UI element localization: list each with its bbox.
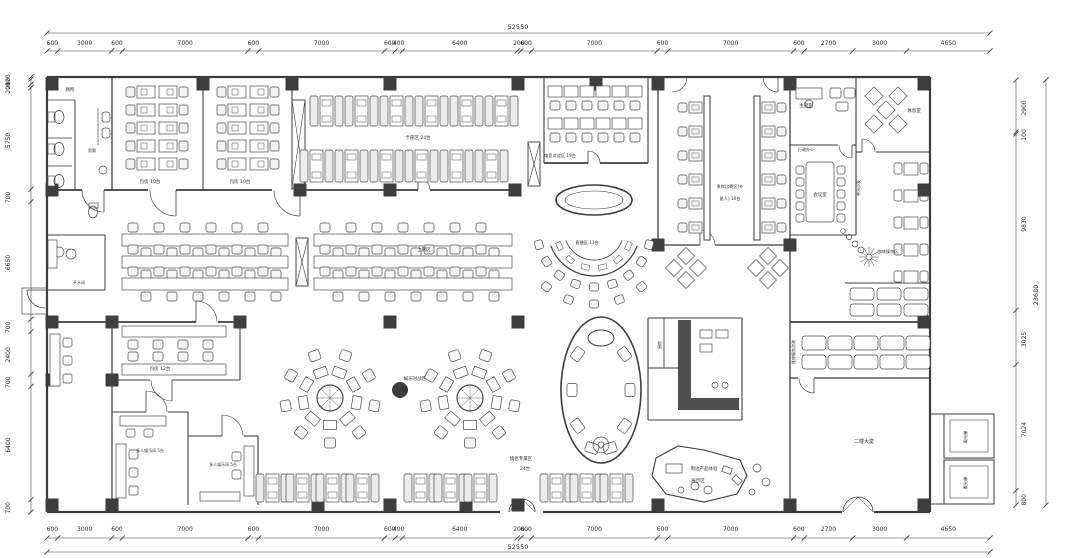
furniture-rect	[564, 118, 578, 129]
furniture-rect	[63, 374, 72, 383]
furniture-rect	[159, 158, 177, 170]
furniture-rect	[570, 346, 586, 362]
furniture-rect	[777, 223, 786, 232]
furniture-rect	[153, 352, 163, 361]
furniture-rect	[250, 140, 268, 152]
furniture-rect	[137, 104, 155, 116]
path	[551, 246, 637, 276]
furniture-rect	[580, 118, 594, 129]
label-elevator-a: 观光梯	[962, 431, 969, 444]
circle	[712, 382, 718, 388]
furniture-rect	[228, 122, 246, 134]
furniture-rect	[270, 105, 279, 115]
furniture-rect	[950, 420, 988, 452]
label-meeting-room: 会议室	[813, 191, 827, 198]
furniture-rect	[258, 267, 268, 276]
column	[197, 78, 210, 91]
furniture-rect	[830, 88, 841, 98]
furniture-rect	[556, 241, 564, 250]
dim-label: 600	[520, 40, 532, 47]
door-swing-arc	[839, 145, 852, 158]
table-diamond	[748, 260, 765, 277]
dim-label: 600	[248, 40, 260, 47]
label-male-toilet: 男厕	[88, 147, 96, 153]
entry-stoop	[22, 288, 47, 314]
dim-label: 600	[520, 526, 532, 533]
column	[918, 316, 931, 329]
furniture-rect	[120, 416, 166, 426]
furniture-rect	[193, 248, 203, 257]
furniture-rect	[445, 411, 461, 426]
furniture-rect	[590, 300, 599, 308]
label-merch-zone-2: 展示区	[691, 478, 705, 484]
furniture-rect	[489, 292, 499, 301]
label-toilet: 厕所	[66, 86, 75, 93]
dim-label: 3000	[77, 40, 92, 47]
furniture-rect	[438, 396, 449, 410]
furniture-rect	[122, 256, 288, 268]
furniture-rect	[153, 340, 163, 349]
furniture-rect	[398, 223, 408, 232]
door	[799, 378, 814, 393]
furniture-rect	[904, 244, 918, 256]
furniture-rect	[310, 96, 318, 126]
door	[150, 190, 176, 216]
furniture-rect	[193, 292, 203, 301]
column	[512, 316, 525, 329]
furniture-rect	[325, 150, 333, 182]
furniture-rect	[617, 418, 633, 434]
dim-label: 3000	[77, 526, 92, 533]
furniture-rect	[628, 118, 642, 129]
furniture-rect	[434, 425, 449, 440]
label-tea-sofa: 茶水沙发	[855, 180, 861, 196]
furniture-rect	[126, 87, 135, 97]
furniture-rect	[854, 336, 878, 350]
furniture-rect	[628, 86, 642, 97]
dim-label: 7000	[587, 40, 602, 47]
furniture-rect	[678, 223, 687, 232]
column	[784, 499, 797, 512]
hub-spoke	[321, 398, 330, 407]
furniture-rect	[570, 279, 581, 289]
furniture-rect	[320, 245, 330, 254]
door-swing-arc	[82, 190, 104, 212]
circle	[704, 486, 712, 494]
furniture-rect	[837, 166, 845, 174]
furniture-rect	[362, 368, 376, 383]
label-rest-room: 休息室	[907, 107, 921, 114]
label-hot-water-room: 开水间	[73, 279, 85, 285]
furniture-rect	[299, 377, 313, 393]
furniture-rect	[217, 105, 226, 115]
furniture-rect	[333, 292, 343, 301]
furniture-rect	[510, 96, 518, 126]
furniture-rect	[440, 150, 448, 182]
door-swing-arc	[150, 190, 176, 216]
furniture-rect	[581, 264, 590, 271]
furniture-rect	[567, 384, 577, 397]
dim-label: 600	[657, 526, 669, 533]
furniture-rect	[439, 377, 453, 393]
furniture-rect	[320, 267, 330, 276]
hub-spoke	[461, 398, 470, 407]
furniture-rect	[624, 241, 632, 250]
furniture-rect	[836, 102, 848, 111]
furniture-rect	[920, 271, 928, 282]
furniture-rect	[154, 267, 164, 276]
furniture-rect	[371, 474, 379, 502]
furniture-rect	[548, 118, 562, 129]
furniture-rect	[122, 326, 226, 337]
path	[652, 446, 747, 502]
furniture-rect	[359, 248, 369, 257]
column	[106, 374, 119, 387]
furniture-rect	[614, 294, 625, 305]
furniture-rect	[339, 349, 353, 362]
dim-total-label: 52550	[508, 543, 529, 551]
furniture-rect	[167, 248, 177, 257]
dim-label: 7024	[1021, 422, 1028, 437]
furniture-rect	[691, 398, 739, 410]
furniture-rect	[453, 366, 468, 379]
furniture-rect	[137, 158, 155, 170]
door	[588, 151, 600, 163]
circle	[66, 249, 76, 259]
furniture-rect	[385, 270, 395, 279]
furniture-rect	[475, 96, 483, 126]
furniture-rect	[489, 270, 499, 279]
ellipse	[54, 143, 64, 156]
dim-label: 600	[47, 40, 59, 47]
column	[384, 499, 397, 512]
furniture-rect	[335, 96, 343, 126]
dim-label: 600	[248, 526, 260, 533]
furniture-rect	[284, 368, 298, 383]
furniture-rect	[250, 158, 268, 170]
furniture-rect	[850, 304, 874, 316]
furniture-rect	[300, 150, 308, 182]
table-diamond	[772, 260, 789, 277]
furniture-rect	[245, 292, 255, 301]
furniture-rect	[630, 133, 640, 142]
furniture-rect	[434, 474, 442, 502]
label-battle-zone-2: 23台	[398, 386, 409, 393]
furniture-rect	[122, 278, 288, 290]
furniture-rect	[463, 248, 473, 257]
label-private-room-10a: 包房 10台	[140, 178, 161, 185]
column	[918, 499, 931, 512]
furniture-rect	[636, 256, 648, 268]
furniture-rect	[332, 366, 347, 379]
dim-label: 6650	[5, 255, 12, 270]
furniture-rect	[689, 126, 702, 137]
furniture-rect	[102, 112, 110, 122]
table-diamond	[889, 87, 907, 105]
column	[512, 499, 525, 512]
furniture-rect	[450, 245, 460, 254]
furniture-rect	[424, 223, 434, 232]
label-merch-zone-1: 周边产品体验	[691, 465, 718, 472]
column	[918, 78, 931, 91]
furniture-rect	[219, 270, 229, 279]
door-swing-arc	[196, 301, 217, 322]
furniture-rect	[206, 223, 216, 232]
furniture-rect	[950, 466, 988, 498]
label-party-room-b: 多人娱乐间 5台	[209, 461, 237, 467]
column	[384, 316, 397, 329]
dim-label: 700	[5, 376, 12, 388]
dim-label: 7000	[178, 40, 193, 47]
furniture-rect	[476, 245, 486, 254]
furniture-rect	[258, 245, 268, 254]
furniture-rect	[678, 103, 687, 112]
furniture-rect	[944, 414, 994, 458]
furniture-rect	[420, 400, 432, 413]
ellipse	[54, 175, 64, 188]
ellipse	[588, 330, 614, 346]
furniture-rect	[314, 234, 512, 246]
furniture-rect	[796, 178, 804, 186]
circle	[722, 382, 728, 388]
furniture-rect	[630, 101, 640, 110]
door-swing-arc	[862, 139, 875, 152]
circle	[841, 229, 846, 234]
dim-label: 700	[5, 322, 12, 334]
furniture-rect	[206, 267, 216, 276]
furniture-rect	[491, 396, 502, 410]
furniture-rect	[802, 336, 826, 350]
furniture-rect	[232, 245, 242, 254]
furniture-rect	[580, 86, 594, 97]
furniture-rect	[894, 271, 902, 282]
dim-label: 7000	[587, 526, 602, 533]
furniture-rect	[180, 245, 190, 254]
furniture-rect	[102, 128, 110, 138]
dim-label: 600	[47, 526, 59, 533]
furniture-rect	[904, 190, 918, 202]
door-swing-arc	[799, 378, 814, 393]
furniture-rect	[126, 105, 135, 115]
circle	[749, 489, 755, 495]
floor-plan-svg: 6003000600700060070006004006400200600700…	[0, 0, 1072, 558]
table-diamond	[666, 260, 683, 277]
dim-label: 200	[5, 82, 12, 94]
furniture-rect	[137, 122, 155, 134]
ellipse	[565, 191, 623, 209]
label-private-room-10b: 包房 10台	[230, 178, 251, 185]
furniture-rect	[360, 150, 368, 182]
furniture-rect	[666, 464, 682, 473]
label-vip-zone-1: 贵宾比赛区(外	[717, 183, 745, 190]
furniture-rect	[228, 158, 246, 170]
door-swing-arc	[222, 415, 243, 436]
furniture-rect	[305, 411, 321, 426]
furniture-rect	[796, 214, 804, 222]
furniture-rect	[678, 199, 687, 208]
furniture-rect	[602, 441, 617, 455]
furniture-rect	[206, 245, 216, 254]
furniture-rect	[411, 292, 421, 301]
furniture-rect	[880, 355, 904, 369]
furniture-rect	[398, 245, 408, 254]
furniture-rect	[385, 248, 395, 257]
furniture-rect	[716, 330, 728, 338]
dim-label: 7000	[314, 526, 329, 533]
furniture-rect	[244, 446, 254, 496]
column	[106, 499, 119, 512]
furniture-rect	[489, 474, 497, 502]
dim-label: 4650	[941, 526, 956, 533]
furniture-rect	[380, 96, 388, 126]
furniture-rect	[904, 163, 918, 175]
dim-label: 600	[793, 526, 805, 533]
furniture-rect	[415, 96, 423, 126]
furniture-rect	[286, 474, 294, 502]
furniture-rect	[200, 492, 240, 501]
door-swing-arc	[763, 77, 778, 92]
furniture-rect	[548, 86, 562, 97]
furniture-rect	[335, 150, 343, 182]
hub-spoke	[321, 389, 330, 398]
furniture-rect	[689, 198, 702, 209]
furniture-rect	[179, 141, 188, 151]
furniture-rect	[613, 255, 622, 264]
table-diamond	[678, 272, 695, 289]
circle	[762, 478, 770, 486]
furniture-rect	[203, 352, 213, 361]
dim-label: 7000	[178, 526, 193, 533]
furniture-rect	[828, 336, 852, 350]
hub-spoke	[461, 389, 470, 398]
furniture-rect	[217, 159, 226, 169]
furniture-rect	[854, 355, 878, 369]
furniture-rect	[596, 118, 610, 129]
furniture-rect	[678, 320, 691, 410]
label-repair-service: 维修服务咨询	[790, 340, 796, 364]
furniture-rect	[920, 217, 928, 228]
table-diamond	[877, 101, 895, 119]
dim-label: 6400	[452, 40, 467, 47]
furniture-rect	[796, 190, 804, 198]
furniture-rect	[540, 474, 548, 502]
furniture-rect	[565, 255, 574, 264]
furniture-rect	[612, 86, 626, 97]
furniture-rect	[63, 356, 72, 365]
furniture-rect	[63, 338, 72, 347]
hub-spoke	[470, 389, 479, 398]
furniture-rect	[598, 264, 607, 271]
dim-label: 3000	[872, 526, 887, 533]
furniture-rect	[345, 96, 353, 126]
furniture-rect	[762, 150, 775, 161]
furniture-rect	[217, 141, 226, 151]
furniture-rect	[476, 223, 486, 232]
furniture-rect	[463, 270, 473, 279]
furniture-rect	[689, 222, 702, 233]
furniture-rect	[219, 292, 229, 301]
furniture-rect	[541, 256, 553, 268]
dim-label: 2700	[821, 40, 836, 47]
furniture-rect	[570, 418, 586, 434]
furniture-rect	[128, 267, 138, 276]
furniture-rect	[850, 288, 874, 300]
furniture-rect	[837, 178, 845, 186]
furniture-rect	[228, 140, 246, 152]
furniture-rect	[372, 245, 382, 254]
furniture-rect	[906, 336, 930, 350]
furniture-rect	[678, 151, 687, 160]
dim-label: 600	[111, 526, 123, 533]
furniture-rect	[700, 344, 712, 352]
furniture-rect	[144, 429, 153, 437]
column	[384, 184, 397, 197]
furniture-rect	[193, 270, 203, 279]
dim-total-label: 52550	[508, 23, 529, 31]
furniture-rect	[154, 245, 164, 254]
circle	[678, 487, 684, 493]
furniture-rect	[372, 223, 382, 232]
furniture-rect	[316, 474, 324, 502]
label-esports-zone: 电竞对战区 19台	[544, 152, 576, 159]
furniture-rect	[564, 86, 578, 97]
furniture-rect	[405, 96, 413, 126]
dim-label: 100	[1021, 129, 1028, 141]
furniture-rect	[636, 281, 648, 293]
dim-label: 600	[111, 40, 123, 47]
furniture-rect	[370, 150, 378, 182]
furniture-rect	[180, 267, 190, 276]
furniture-rect	[600, 474, 608, 502]
furniture-rect	[294, 425, 309, 440]
furniture-rect	[48, 240, 57, 268]
furniture-rect	[590, 283, 599, 291]
furniture-rect	[437, 292, 447, 301]
label-vip-zone-2: 星人) 10台	[720, 195, 741, 202]
furniture-rect	[777, 127, 786, 136]
label-coffee-bar: 咖啡操作区	[878, 248, 899, 255]
furniture-rect	[351, 396, 362, 410]
dim-label: 700	[5, 502, 12, 514]
furniture-rect	[250, 104, 268, 116]
dim-label: 3025	[1021, 332, 1028, 347]
furniture-rect	[906, 355, 930, 369]
ellipse	[556, 185, 632, 215]
door	[839, 145, 852, 158]
furniture-rect	[732, 475, 743, 486]
furniture-rect	[159, 104, 177, 116]
furniture-rect	[437, 248, 447, 257]
furniture-rect	[486, 377, 500, 393]
furniture-rect	[880, 336, 904, 350]
furniture-rect	[485, 96, 493, 126]
table-diamond	[865, 115, 883, 133]
furniture-rect	[598, 133, 608, 142]
column	[234, 316, 247, 329]
furniture-rect	[877, 288, 901, 300]
furniture-rect	[333, 248, 343, 257]
furniture-rect	[894, 190, 902, 201]
furniture-rect	[179, 105, 188, 115]
furniture-rect	[777, 103, 786, 112]
column	[46, 499, 59, 512]
furniture-rect	[122, 364, 226, 375]
furniture-rect	[920, 244, 928, 255]
furniture-rect	[333, 270, 343, 279]
furniture-rect	[346, 245, 356, 254]
circle	[852, 241, 858, 247]
furniture-rect	[440, 96, 448, 126]
